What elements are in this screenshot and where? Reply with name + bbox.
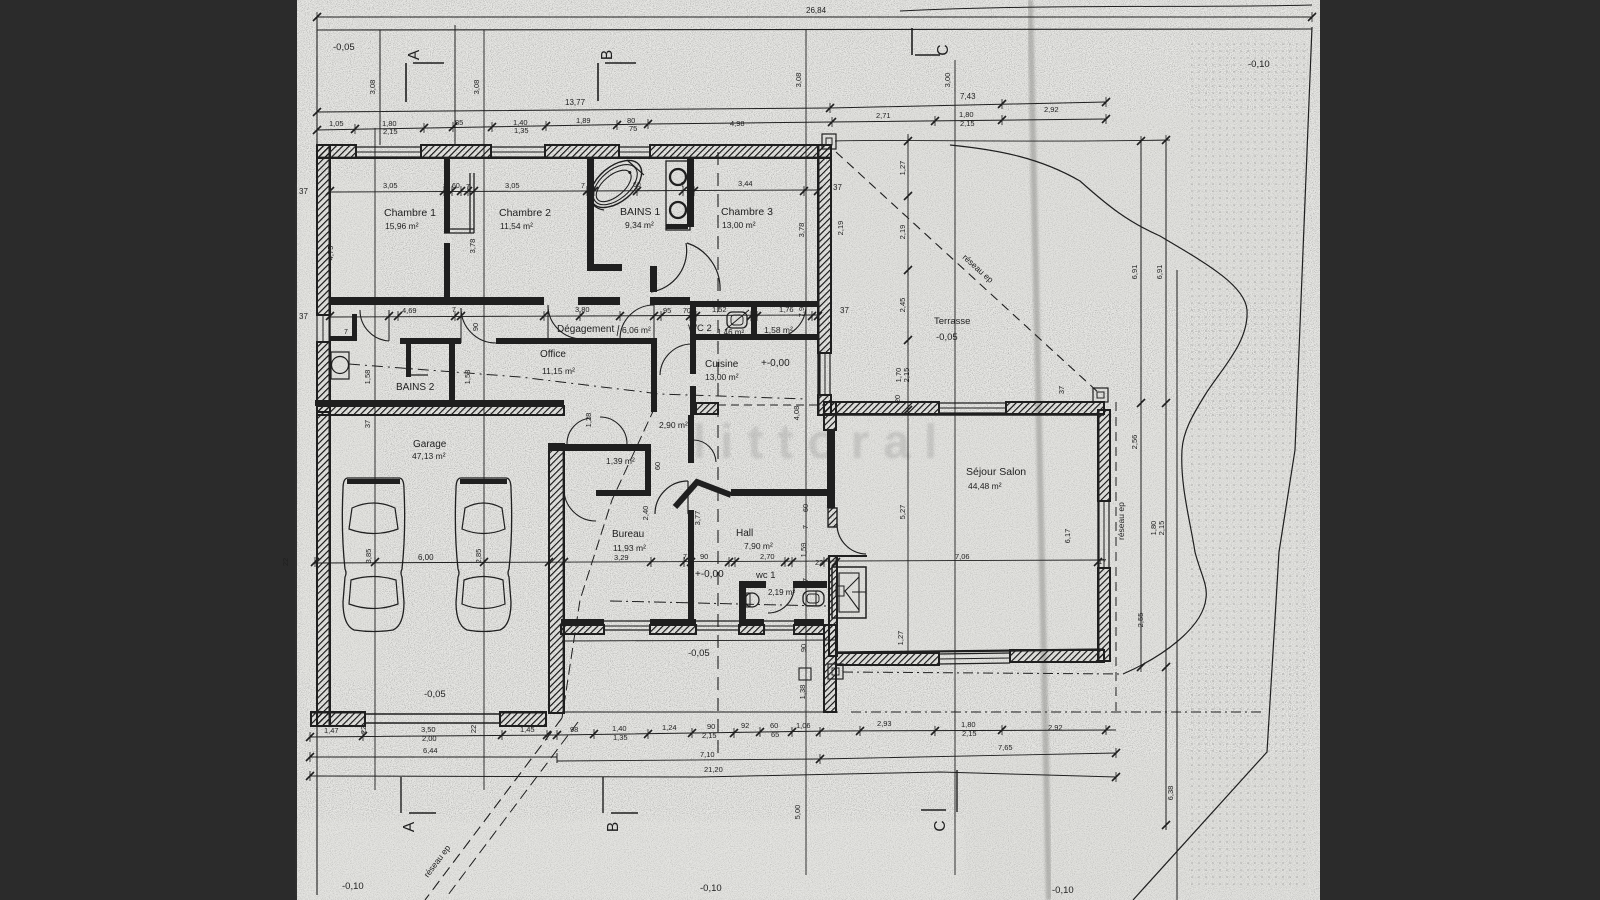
svg-text:7: 7	[801, 490, 810, 494]
svg-text:1,39 m²: 1,39 m²	[606, 456, 635, 466]
svg-text:2,15: 2,15	[383, 127, 398, 136]
svg-text:7: 7	[801, 578, 810, 582]
svg-text:75: 75	[629, 124, 637, 133]
svg-text:WC 2: WC 2	[688, 323, 712, 334]
svg-text:7,10: 7,10	[700, 750, 715, 759]
svg-text:BAINS 1: BAINS 1	[620, 206, 660, 218]
svg-text:3,05: 3,05	[505, 181, 520, 190]
svg-text:1,38: 1,38	[798, 685, 807, 700]
svg-text:7: 7	[801, 525, 810, 529]
svg-text:11,93 m²: 11,93 m²	[613, 543, 646, 553]
svg-text:13,00 m²: 13,00 m²	[722, 220, 756, 230]
svg-text:2,40: 2,40	[641, 506, 650, 521]
svg-text:13,00 m²: 13,00 m²	[705, 372, 739, 382]
svg-text:26,84: 26,84	[806, 6, 827, 15]
svg-text:2,85: 2,85	[474, 549, 483, 564]
svg-text:3,78: 3,78	[468, 239, 477, 254]
svg-text:Cuisine: Cuisine	[705, 359, 739, 370]
svg-text:-0,05: -0,05	[936, 332, 958, 343]
svg-text:60: 60	[801, 504, 810, 512]
svg-text:1,35: 1,35	[514, 126, 529, 135]
svg-text:3,85: 3,85	[364, 549, 373, 564]
svg-text:85: 85	[455, 118, 463, 127]
svg-text:90: 90	[471, 323, 480, 331]
svg-text:22: 22	[815, 558, 823, 567]
svg-text:17: 17	[1098, 557, 1106, 566]
svg-text:littoral: littoral	[693, 416, 952, 469]
svg-text:2,93: 2,93	[877, 719, 892, 728]
svg-text:6,91: 6,91	[1130, 265, 1139, 280]
svg-text:1,46 m²: 1,46 m²	[717, 328, 744, 337]
svg-text:2,92: 2,92	[1044, 105, 1059, 114]
svg-text:2,70: 2,70	[760, 552, 775, 561]
svg-text:C: C	[932, 820, 949, 831]
svg-text:1,58 m²: 1,58 m²	[764, 325, 793, 335]
svg-text:2,92: 2,92	[1048, 723, 1063, 732]
svg-text:Hall: Hall	[736, 528, 753, 539]
svg-text:-0,10: -0,10	[1248, 59, 1270, 70]
svg-text:90: 90	[799, 644, 808, 652]
svg-text:1,05: 1,05	[329, 119, 344, 128]
svg-text:21,20: 21,20	[704, 765, 723, 774]
svg-text:1,06: 1,06	[796, 721, 811, 730]
svg-text:3,00: 3,00	[943, 73, 952, 88]
svg-text:1,27: 1,27	[898, 161, 907, 176]
svg-text:B: B	[605, 822, 622, 832]
svg-text:98: 98	[570, 725, 578, 734]
svg-text:7,06: 7,06	[955, 552, 970, 561]
svg-text:A: A	[406, 49, 423, 60]
svg-text:60: 60	[653, 462, 662, 470]
svg-text:4,75: 4,75	[326, 246, 335, 261]
svg-text:2,19 m²: 2,19 m²	[768, 588, 795, 597]
svg-text:2,15: 2,15	[962, 729, 977, 738]
svg-text:60: 60	[633, 182, 641, 189]
svg-text:6,38: 6,38	[1166, 786, 1175, 801]
svg-text:7: 7	[344, 329, 348, 336]
svg-text:7,43: 7,43	[960, 92, 976, 101]
svg-text:2,15: 2,15	[702, 731, 717, 740]
svg-text:2,19: 2,19	[898, 225, 907, 240]
svg-text:Dégagement: Dégagement	[557, 324, 614, 335]
svg-text:60: 60	[770, 721, 778, 730]
svg-text:Terrasse: Terrasse	[934, 316, 970, 327]
svg-text:1,58: 1,58	[363, 370, 372, 385]
svg-text:2,15: 2,15	[902, 368, 911, 383]
svg-text:1,59: 1,59	[799, 543, 808, 558]
svg-text:1,35: 1,35	[613, 733, 628, 742]
svg-text:Séjour Salon: Séjour Salon	[966, 466, 1026, 478]
svg-text:Garage: Garage	[413, 439, 447, 450]
svg-text:11,54 m²: 11,54 m²	[500, 221, 533, 231]
svg-text:7: 7	[443, 184, 447, 191]
svg-text:15,96 m²: 15,96 m²	[385, 221, 419, 231]
svg-text:3,78: 3,78	[797, 223, 806, 238]
svg-text:7,90 m²: 7,90 m²	[744, 541, 773, 551]
svg-text:1,52: 1,52	[712, 305, 727, 314]
svg-text:3,80: 3,80	[575, 305, 590, 314]
svg-text:6,00: 6,00	[418, 553, 434, 562]
svg-text:47,13 m²: 47,13 m²	[412, 451, 446, 461]
svg-text:2,15: 2,15	[960, 119, 975, 128]
svg-text:2,90 m²: 2,90 m²	[659, 420, 688, 430]
svg-text:7,65: 7,65	[998, 743, 1013, 752]
svg-text:+-0,00: +-0,00	[761, 358, 790, 369]
svg-text:Bureau: Bureau	[612, 529, 644, 540]
svg-text:4,69: 4,69	[402, 306, 417, 315]
svg-text:37: 37	[299, 187, 308, 196]
svg-text:B: B	[599, 50, 616, 60]
svg-text:3,77: 3,77	[693, 511, 702, 526]
svg-text:-0,05: -0,05	[688, 648, 710, 659]
svg-text:1,80: 1,80	[959, 110, 974, 119]
svg-text:22: 22	[281, 558, 290, 566]
svg-text:-0,05: -0,05	[333, 42, 355, 53]
svg-text:2,19: 2,19	[836, 221, 845, 236]
svg-text:22: 22	[359, 726, 368, 734]
svg-text:-0,10: -0,10	[342, 881, 364, 892]
svg-text:70: 70	[683, 308, 691, 315]
svg-text:22: 22	[469, 725, 478, 733]
svg-text:1,47: 1,47	[324, 726, 339, 735]
svg-text:60: 60	[452, 183, 460, 190]
svg-text:3,05: 3,05	[383, 181, 398, 190]
svg-text:7: 7	[681, 182, 685, 189]
svg-text:37: 37	[833, 183, 842, 192]
svg-text:2,15: 2,15	[1157, 521, 1166, 536]
svg-text:1,45: 1,45	[520, 725, 535, 734]
svg-text:3,08: 3,08	[472, 80, 481, 95]
svg-text:-0,10: -0,10	[700, 883, 722, 894]
svg-text:5,27: 5,27	[898, 505, 907, 520]
svg-text:Chambre 2: Chambre 2	[499, 207, 551, 219]
svg-text:90: 90	[700, 552, 708, 561]
svg-text:Chambre 1: Chambre 1	[384, 207, 436, 219]
svg-text:7: 7	[466, 184, 470, 191]
svg-text:3,08: 3,08	[368, 80, 377, 95]
svg-text:9,34 m²: 9,34 m²	[625, 220, 654, 230]
svg-text:réseau ep: réseau ep	[1116, 502, 1126, 540]
svg-text:2,00: 2,00	[422, 734, 437, 743]
svg-text:6,91: 6,91	[1155, 265, 1164, 280]
svg-text:1,80: 1,80	[961, 720, 976, 729]
svg-text:1,27: 1,27	[896, 631, 905, 646]
svg-text:7: 7	[452, 307, 456, 314]
svg-text:11,15 m²: 11,15 m²	[542, 366, 575, 376]
svg-text:4,08: 4,08	[792, 406, 801, 421]
svg-text:+-0,00: +-0,00	[695, 569, 724, 580]
svg-text:3,29: 3,29	[614, 553, 629, 562]
svg-text:44,48 m²: 44,48 m²	[968, 481, 1002, 491]
svg-text:3,50: 3,50	[421, 725, 436, 734]
svg-text:4,98: 4,98	[730, 119, 745, 128]
svg-text:1,89: 1,89	[576, 116, 591, 125]
svg-text:6,44: 6,44	[423, 746, 438, 755]
svg-text:3,44: 3,44	[738, 179, 753, 188]
svg-text:7,90: 7,90	[797, 303, 806, 318]
svg-text:37: 37	[363, 420, 372, 428]
svg-text:wc 1: wc 1	[755, 570, 776, 581]
svg-text:Office: Office	[540, 349, 566, 360]
svg-text:37: 37	[840, 306, 849, 315]
svg-text:1,24: 1,24	[662, 723, 677, 732]
svg-text:BAINS 2: BAINS 2	[396, 382, 435, 393]
svg-text:1,76: 1,76	[779, 305, 794, 314]
svg-text:65: 65	[771, 730, 779, 739]
svg-text:95: 95	[663, 306, 671, 315]
svg-text:37: 37	[299, 312, 308, 321]
svg-text:13,77: 13,77	[565, 98, 586, 107]
svg-text:7: 7	[683, 554, 687, 561]
svg-text:6,17: 6,17	[1063, 529, 1072, 544]
svg-text:-0,10: -0,10	[1052, 885, 1074, 896]
svg-text:6,06 m²: 6,06 m²	[622, 325, 651, 335]
svg-text:1,28: 1,28	[584, 413, 593, 428]
svg-text:2,55: 2,55	[1136, 613, 1145, 628]
svg-text:90: 90	[707, 722, 715, 731]
svg-text:1,40: 1,40	[612, 724, 627, 733]
svg-text:37: 37	[1057, 386, 1066, 394]
svg-text:92: 92	[741, 721, 749, 730]
svg-text:-0,05: -0,05	[424, 689, 446, 700]
svg-text:2,56: 2,56	[1130, 435, 1139, 450]
svg-text:C: C	[935, 44, 952, 55]
svg-text:3,08: 3,08	[794, 73, 803, 88]
svg-text:2,45: 2,45	[898, 298, 907, 313]
svg-text:A: A	[401, 821, 418, 832]
svg-text:7: 7	[581, 183, 585, 190]
svg-text:Chambre 3: Chambre 3	[721, 206, 773, 218]
svg-text:1,58: 1,58	[463, 370, 472, 385]
svg-text:2,71: 2,71	[876, 111, 891, 120]
svg-text:5,00: 5,00	[793, 805, 802, 820]
